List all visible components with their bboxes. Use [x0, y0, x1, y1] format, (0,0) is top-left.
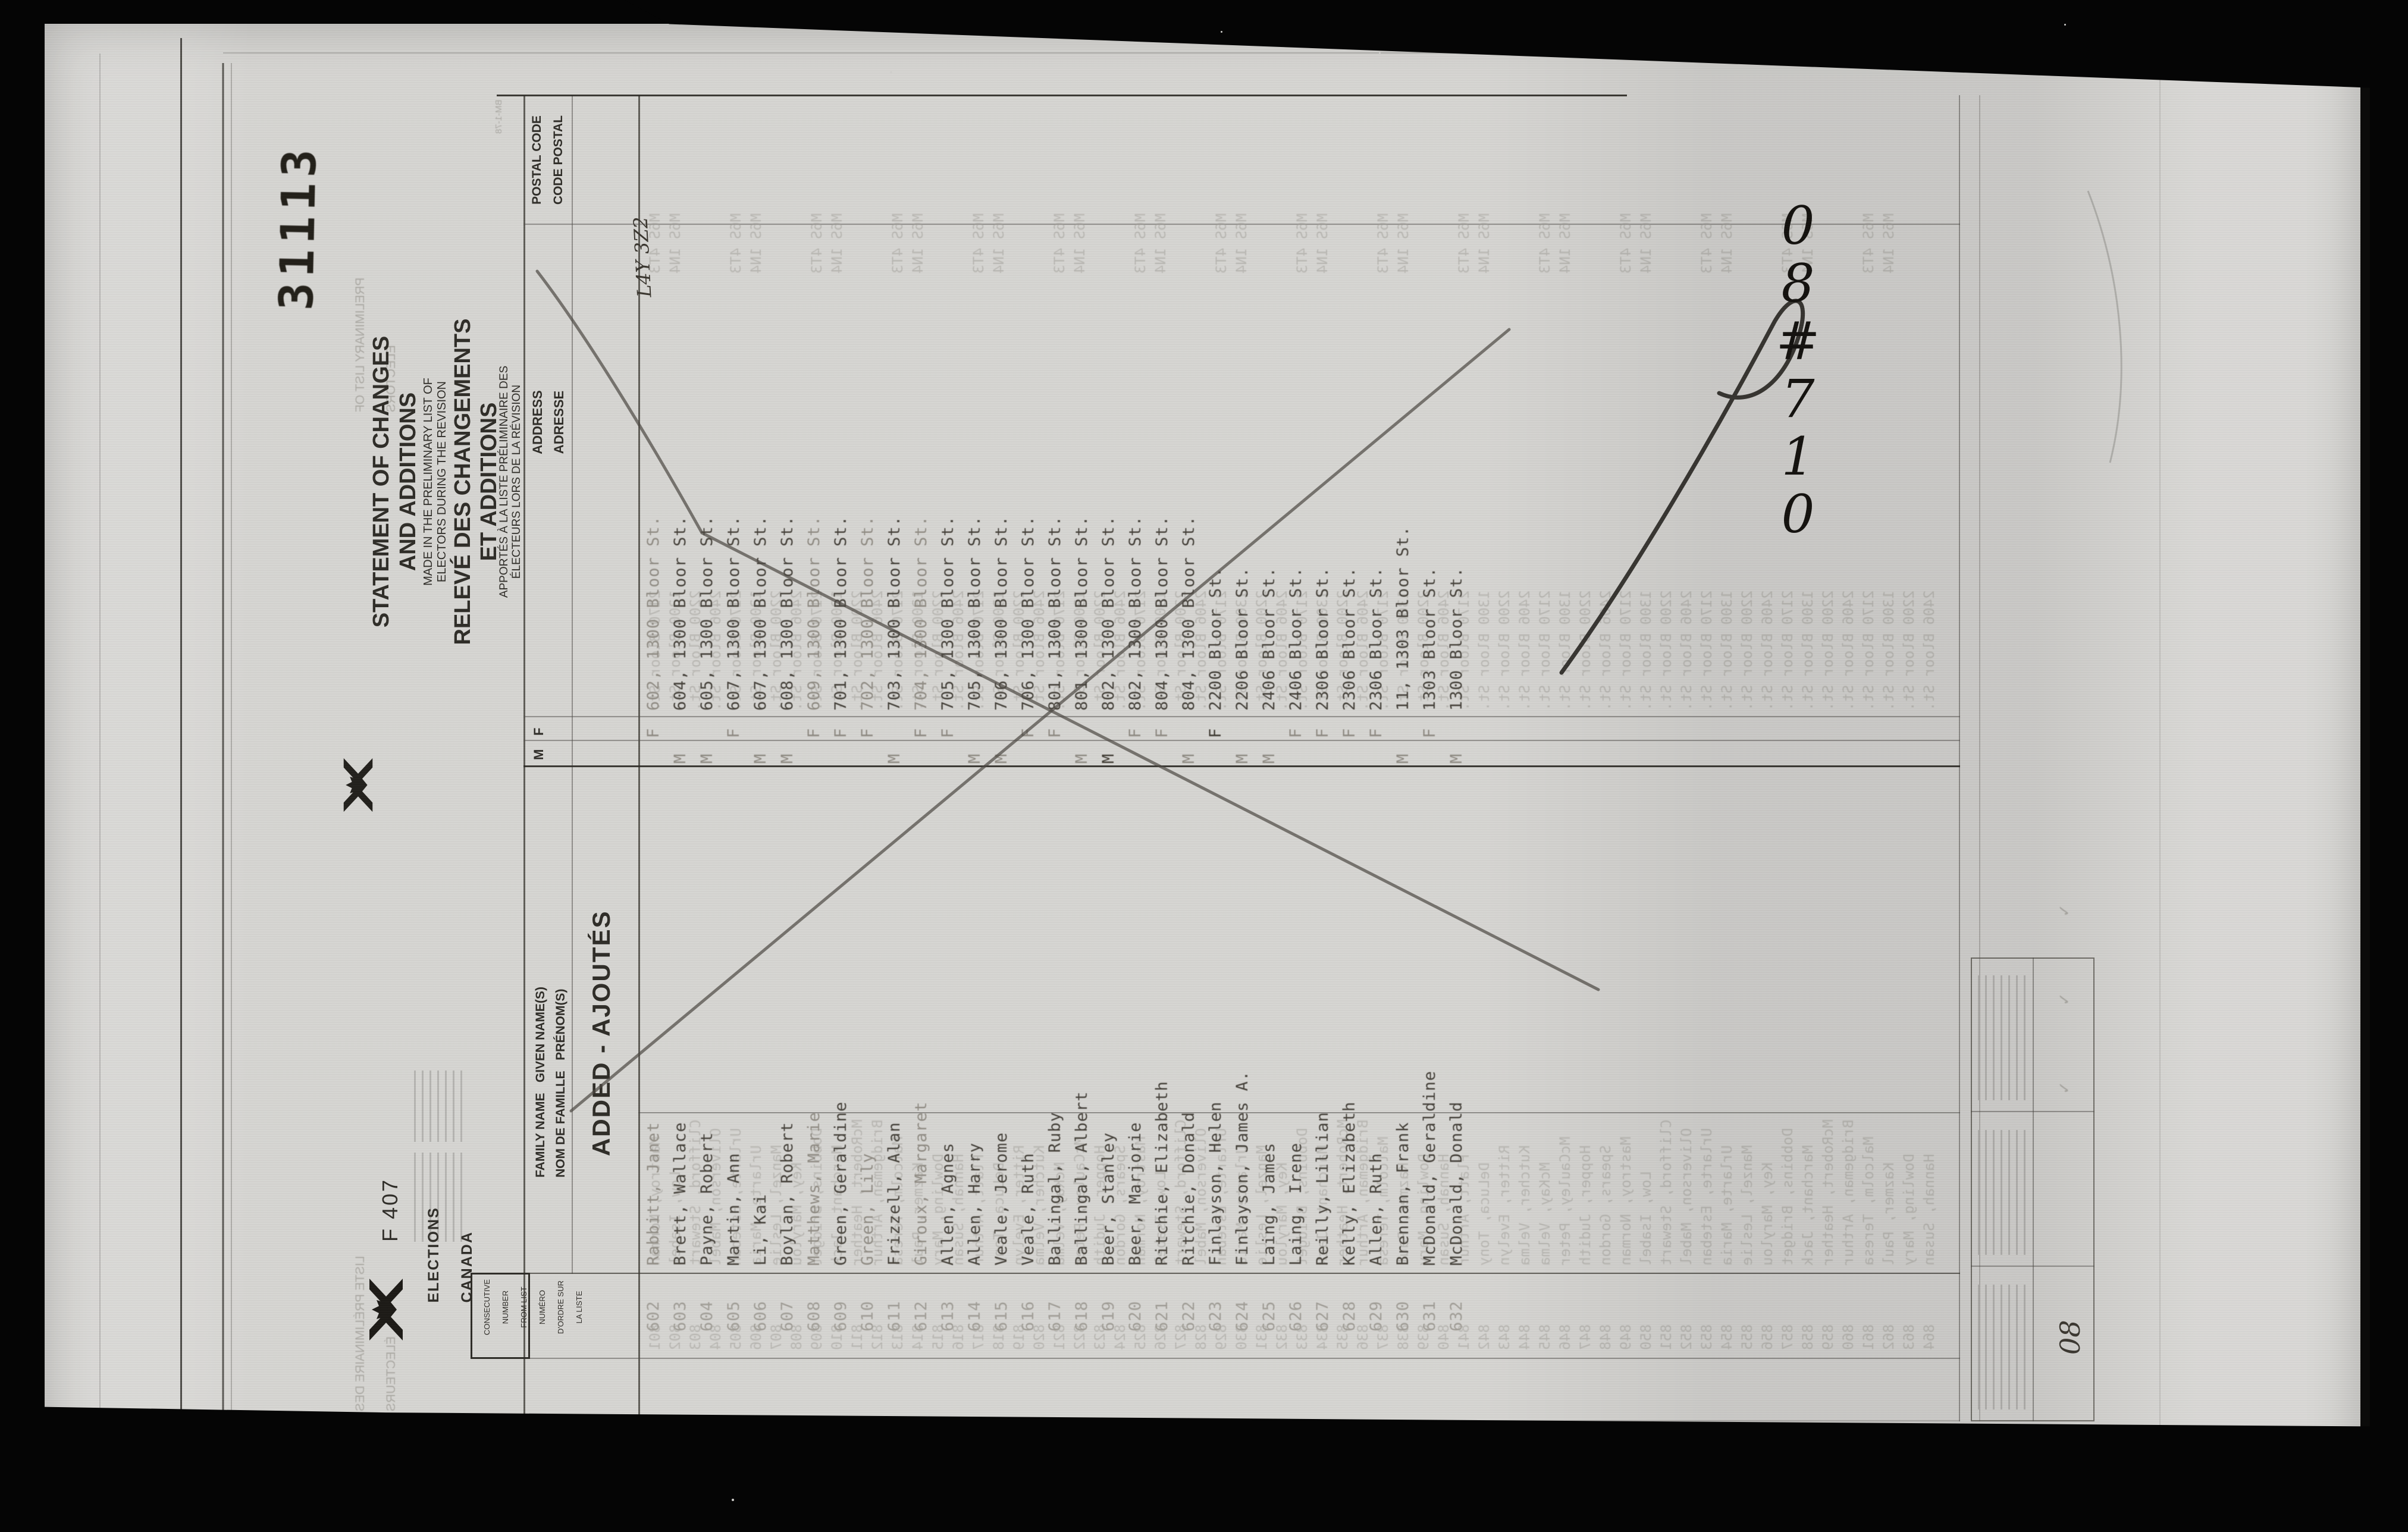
- row-name: Allen, Agnes: [939, 1142, 957, 1266]
- table-row: 625 Laing, James M 2406 Bloor St.: [1260, 21, 1284, 1511]
- row-number: 620: [1126, 1277, 1145, 1355]
- row-name: McDonald, Geraldine: [1421, 1070, 1439, 1266]
- row-address: 804, 1300 Bloor St.: [1180, 516, 1198, 711]
- table-row: 611 Frizzell, Alan M 703, 1300 Bloor St.: [885, 21, 909, 1511]
- film-mask-left: [0, 0, 45, 1532]
- row-name: Laing, Irene: [1287, 1142, 1305, 1266]
- row-number: 624: [1233, 1277, 1252, 1355]
- row-name: Finlayson, James A.: [1233, 1070, 1252, 1266]
- row-sex: F: [1287, 728, 1305, 738]
- table-row: 612 Giroux, Margaret F 704, 1300 Bloor S…: [912, 21, 936, 1511]
- row-address: 2306 Bloor St.: [1367, 567, 1385, 711]
- row-address: 2206 Bloor St.: [1233, 567, 1252, 711]
- row-sex: M: [671, 754, 689, 764]
- row-name: Beer, Marjorie: [1126, 1122, 1145, 1266]
- row-name: Payne, Robert: [698, 1132, 716, 1266]
- row-sex: F: [912, 728, 930, 738]
- row-address: 1303 Bloor St.: [1421, 567, 1439, 711]
- row-address: 703, 1300 Bloor St.: [885, 516, 904, 711]
- row-address: 608, 1300 Bloor St.: [778, 516, 797, 711]
- row-sex: F: [644, 728, 663, 738]
- row-address: 2200 Bloor St.: [1206, 567, 1225, 711]
- table-row: 631 McDonald, Geraldine F 1303 Bloor St.: [1421, 21, 1444, 1511]
- table-row: 617 Ballingal, Ruby F 801, 1300 Bloor St…: [1046, 21, 1070, 1511]
- row-name: Martin, Ann: [725, 1153, 743, 1266]
- row-address: 701, 1300 Bloor St.: [832, 516, 850, 711]
- row-number: 606: [751, 1277, 770, 1355]
- row-number: 631: [1421, 1277, 1439, 1355]
- row-number: 623: [1206, 1277, 1225, 1355]
- footer-mid-line: [2033, 958, 2034, 1421]
- row-number: 615: [992, 1277, 1011, 1355]
- footer-tick-marks: ✓ ✓ ✓: [2055, 868, 2074, 1094]
- row-address: 801, 1300 Bloor St.: [1046, 516, 1064, 711]
- row-sex: F: [1340, 728, 1359, 738]
- row-sex: F: [725, 728, 743, 738]
- row-number: 604: [698, 1277, 716, 1355]
- table-row: 605 Martin, Ann F 607, 1300 Bloor St.: [725, 21, 748, 1511]
- row-name: Li, Kai: [751, 1194, 770, 1266]
- table-row: 619 Beer, Stanley M 802, 1300 Bloor St.: [1099, 21, 1123, 1511]
- microfilm-background: 31113 PRELIMINARY LIST OF ELECTORS LISTE…: [0, 0, 2408, 1532]
- row-name: Rabbitt, Janet: [644, 1122, 663, 1266]
- row-sex: M: [778, 754, 797, 764]
- row-address: 705, 1300 Bloor St.: [939, 516, 957, 711]
- table-row: 614 Allen, Harry M 705, 1300 Bloor St.: [965, 21, 989, 1511]
- table-row: 632 McDonald, Donald M 1300 Bloor St.: [1447, 21, 1471, 1511]
- row-number: 605: [725, 1277, 743, 1355]
- row-sex: F: [939, 728, 957, 738]
- row-address: 1300 Bloor St.: [1447, 567, 1466, 711]
- row-name: Giroux, Margaret: [912, 1101, 930, 1266]
- row-number: 607: [778, 1277, 797, 1355]
- row-address: 704, 1300 Bloor St.: [912, 516, 930, 711]
- row-number: 610: [858, 1277, 877, 1355]
- film-reference-note: 08#710: [1767, 195, 1829, 541]
- row-sex: F: [1421, 728, 1439, 738]
- row-name: Ritchie, Elizabeth: [1153, 1081, 1171, 1266]
- row-number: 609: [832, 1277, 850, 1355]
- table-row: 630 Brennan, Frank M 11, 1303 Bloor St.: [1394, 21, 1418, 1511]
- row-address: 706, 1300 Bloor St.: [992, 516, 1011, 711]
- row-name: Green, Lily: [858, 1153, 877, 1266]
- row-name: Brennan, Frank: [1394, 1122, 1412, 1266]
- row-number: 612: [912, 1277, 930, 1355]
- row-sex: M: [885, 754, 904, 764]
- row-number: 614: [965, 1277, 984, 1355]
- scanned-page: 31113 PRELIMINARY LIST OF ELECTORS LISTE…: [45, 21, 2360, 1511]
- row-sex: M: [698, 754, 716, 764]
- row-name: Ritchie, Donald: [1180, 1112, 1198, 1266]
- row-sex: M: [751, 754, 770, 764]
- row-address: 804, 1300 Bloor St.: [1153, 516, 1171, 711]
- row-number: 630: [1394, 1277, 1412, 1355]
- row-name: Beer, Stanley: [1099, 1132, 1118, 1266]
- row-name: Reilly, Lillian: [1313, 1112, 1332, 1266]
- row-number: 621: [1153, 1277, 1171, 1355]
- row-name: Green, Geraldine: [832, 1101, 850, 1266]
- row-address: 604, 1300 Bloor St.: [671, 516, 689, 711]
- table-row: 604 Payne, Robert M 605, 1300 Bloor St.: [698, 21, 722, 1511]
- row-sex: F: [1313, 728, 1332, 738]
- table-row: 627 Reilly, Lillian F 2306 Bloor St.: [1313, 21, 1337, 1511]
- row-address: 801, 1300 Bloor St.: [1073, 516, 1091, 711]
- row-address: 2306 Bloor St.: [1340, 567, 1359, 711]
- row-name: Matthews, Marie: [805, 1112, 823, 1266]
- row-sex: F: [1367, 728, 1385, 738]
- row-number: 617: [1046, 1277, 1064, 1355]
- footer-small-print-1: [1978, 1285, 2026, 1409]
- row-number: 622: [1180, 1277, 1198, 1355]
- row-name: Finlayson, Helen: [1206, 1101, 1225, 1266]
- row-sex: F: [1019, 728, 1037, 738]
- table-row: 628 Kelly, Elizabeth F 2306 Bloor St.: [1340, 21, 1364, 1511]
- row-sex: M: [1099, 754, 1118, 764]
- footer-small-print-2: [1978, 1130, 2026, 1255]
- row-address: 2406 Bloor St.: [1287, 567, 1305, 711]
- row-name: Boylan, Robert: [778, 1122, 797, 1266]
- dust-speck: [1221, 31, 1222, 33]
- row-name: Laing, James: [1260, 1142, 1278, 1266]
- row-name: Allen, Harry: [965, 1142, 984, 1266]
- table-row: 629 Allen, Ruth F 2306 Bloor St.: [1367, 21, 1391, 1511]
- row-sex: F: [1046, 728, 1064, 738]
- row-address: 2406 Bloor St.: [1260, 567, 1278, 711]
- row-address: 802, 1300 Bloor St.: [1099, 516, 1118, 711]
- row-name: McDonald, Donald: [1447, 1101, 1466, 1266]
- footer-small-print-3: [1978, 975, 2026, 1100]
- row-number: 629: [1367, 1277, 1385, 1355]
- row-sex: F: [1153, 728, 1171, 738]
- row-address: 11, 1303 Bloor St.: [1394, 526, 1412, 711]
- row-name: Ballingal, Ruby: [1046, 1112, 1064, 1266]
- row-sex: M: [1180, 754, 1198, 764]
- footer-handwritten-value: 08: [2054, 1320, 2086, 1355]
- row-sex: F: [1206, 728, 1225, 738]
- dust-speck: [1379, 52, 1381, 54]
- table-row: 603 Brett, Wallace M 604, 1300 Bloor St.: [671, 21, 695, 1511]
- row-sex: M: [1233, 754, 1252, 764]
- row-sex: F: [805, 728, 823, 738]
- row-sex: M: [992, 754, 1011, 764]
- table-row: 602 Rabbitt, Janet F 602, 1300 Bloor St.: [644, 21, 668, 1511]
- row-address: 2306 Bloor St.: [1313, 567, 1332, 711]
- row-number: 632: [1447, 1277, 1466, 1355]
- row-name: Veale, Ruth: [1019, 1153, 1037, 1266]
- table-row: 609 Green, Geraldine F 701, 1300 Bloor S…: [832, 21, 855, 1511]
- row-sex: F: [858, 728, 877, 738]
- table-row: 613 Allen, Agnes F 705, 1300 Bloor St.: [939, 21, 962, 1511]
- table-row: 618 Ballingal, Albert M 801, 1300 Bloor …: [1073, 21, 1096, 1511]
- row-address: 609, 1300 Bloor St.: [805, 516, 823, 711]
- row-number: 613: [939, 1277, 957, 1355]
- row-address: 607, 1300 Bloor St.: [751, 516, 770, 711]
- row-sex: F: [1126, 728, 1145, 738]
- row-number: 611: [885, 1277, 904, 1355]
- table-row: 622 Ritchie, Donald M 804, 1300 Bloor St…: [1180, 21, 1203, 1511]
- row-number: 602: [644, 1277, 663, 1355]
- row-number: 618: [1073, 1277, 1091, 1355]
- row-sex: M: [1394, 754, 1412, 764]
- row-name: Frizzell, Alan: [885, 1122, 904, 1266]
- row-number: 628: [1340, 1277, 1359, 1355]
- row-sex: M: [965, 754, 984, 764]
- table-row: 626 Laing, Irene F 2406 Bloor St.: [1287, 21, 1310, 1511]
- dust-speck: [890, 71, 892, 74]
- table-row: 624 Finlayson, James A. M 2206 Bloor St.: [1233, 21, 1257, 1511]
- table-row: 608 Matthews, Marie F 609, 1300 Bloor St…: [805, 21, 829, 1511]
- table-row: 615 Veale, Jerome M 706, 1300 Bloor St.: [992, 21, 1016, 1511]
- row-name: Veale, Jerome: [992, 1132, 1011, 1266]
- table-row: 620 Beer, Marjorie F 802, 1300 Bloor St.: [1126, 21, 1150, 1511]
- row-number: 603: [671, 1277, 689, 1355]
- row-number: 627: [1313, 1277, 1332, 1355]
- row-sex: F: [832, 728, 850, 738]
- row-sex: M: [1073, 754, 1091, 764]
- row-address: 706, 1300 Bloor St.: [1019, 516, 1037, 711]
- row-address: 605, 1300 Bloor St.: [698, 516, 716, 711]
- table-row: 621 Ritchie, Elizabeth F 804, 1300 Bloor…: [1153, 21, 1177, 1511]
- table-row: 606 Li, Kai M 607, 1300 Bloor St.: [751, 21, 775, 1511]
- row-sex: M: [1447, 754, 1466, 764]
- film-mask-right: [2370, 0, 2408, 1532]
- row-number: 626: [1287, 1277, 1305, 1355]
- row-address: 702, 1300 Bloor St.: [858, 516, 877, 711]
- dust-speck: [2064, 24, 2066, 26]
- table-row: 616 Veale, Ruth F 706, 1300 Bloor St.: [1019, 21, 1043, 1511]
- row-number: 608: [805, 1277, 823, 1355]
- row-number: 619: [1099, 1277, 1118, 1355]
- row-address: 705, 1300 Bloor St.: [965, 516, 984, 711]
- row-name: Allen, Ruth: [1367, 1153, 1385, 1266]
- table-row: 607 Boylan, Robert M 608, 1300 Bloor St.: [778, 21, 802, 1511]
- row-sex: M: [1260, 754, 1278, 764]
- row-number: 616: [1019, 1277, 1037, 1355]
- row-name: Ballingal, Albert: [1073, 1091, 1091, 1266]
- table-row: 610 Green, Lily F 702, 1300 Bloor St.: [858, 21, 882, 1511]
- row-address: 607, 1300 Bloor St.: [725, 516, 743, 711]
- form-rotated-content: 31113 PRELIMINARY LIST OF ELECTORS LISTE…: [45, 21, 2360, 1511]
- row-number: 625: [1260, 1277, 1278, 1355]
- row-address: 802, 1300 Bloor St.: [1126, 516, 1145, 711]
- table-row: 623 Finlayson, Helen F 2200 Bloor St.: [1206, 21, 1230, 1511]
- row-name: Kelly, Elizabeth: [1340, 1101, 1359, 1266]
- dust-speck: [732, 1499, 734, 1501]
- row-address: 602, 1300 Bloor St.: [644, 516, 663, 711]
- row-name: Brett, Wallace: [671, 1122, 689, 1266]
